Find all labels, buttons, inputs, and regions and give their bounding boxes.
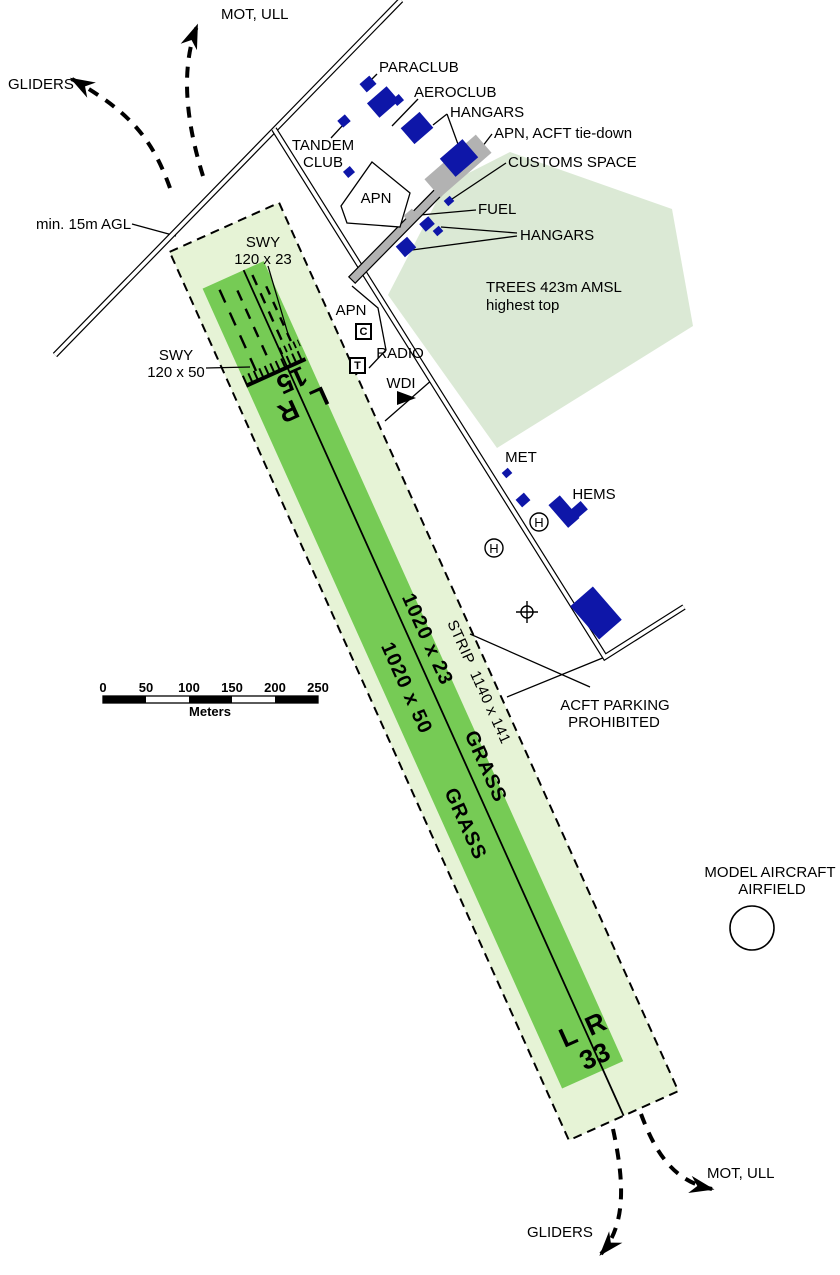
swy-sw-label-1: SWY bbox=[159, 347, 193, 364]
parking-fence-line bbox=[507, 657, 605, 697]
gliders-top-label: GLIDERS bbox=[8, 76, 74, 93]
hangars-lower-label: HANGARS bbox=[520, 227, 594, 244]
scale-tick-100: 100 bbox=[178, 680, 200, 695]
fuel-label: FUEL bbox=[478, 201, 516, 218]
helipad-letter: H bbox=[489, 541, 498, 556]
scale-tick-150: 150 bbox=[221, 680, 243, 695]
hangars-top-leader-1 bbox=[433, 114, 447, 125]
scale-tick-50: 50 bbox=[139, 680, 153, 695]
mot-top-label: MOT, ULL bbox=[221, 6, 289, 23]
tandem-label-1: TANDEM bbox=[292, 137, 354, 154]
building-large bbox=[570, 587, 622, 640]
acft-parking-label-2: PROHIBITED bbox=[568, 714, 660, 731]
model-airfield-icon bbox=[730, 906, 774, 950]
mot-route-arrow-bottom-icon bbox=[641, 1114, 712, 1189]
gliders-route-arrow-bottom-icon bbox=[601, 1129, 621, 1254]
apn-tiedown-label: APN, ACFT tie-down bbox=[494, 125, 632, 142]
customs-label: CUSTOMS SPACE bbox=[508, 154, 637, 171]
building-tandem bbox=[337, 114, 350, 127]
tandem-label-2: CLUB bbox=[303, 154, 343, 171]
radio-label: RADIO bbox=[376, 345, 424, 362]
scale-tick-200: 200 bbox=[264, 680, 286, 695]
scale-bar: 0 50 100 150 200 250 Meters bbox=[99, 680, 328, 719]
gliders-bottom-label: GLIDERS bbox=[527, 1224, 593, 1241]
scale-tick-0: 0 bbox=[99, 680, 106, 695]
paraclub-label: PARACLUB bbox=[379, 59, 459, 76]
model-airfield-label-2: AIRFIELD bbox=[738, 881, 806, 898]
symbol-c-letter: C bbox=[360, 326, 368, 338]
gliders-route-arrow-top-icon bbox=[72, 79, 170, 188]
building-paraclub bbox=[359, 76, 376, 93]
mot-bottom-label: MOT, ULL bbox=[707, 1165, 775, 1182]
trees-label-1: TREES 423m AMSL bbox=[486, 279, 622, 296]
building-met-a bbox=[502, 468, 513, 479]
wdi-label: WDI bbox=[386, 375, 415, 392]
acft-parking-label-1: ACFT PARKING bbox=[560, 697, 669, 714]
hangars-top-label: HANGARS bbox=[450, 104, 524, 121]
scale-unit: Meters bbox=[189, 704, 231, 719]
trees-label-2: highest top bbox=[486, 297, 559, 314]
swy-sw-label-2: 120 x 50 bbox=[147, 364, 205, 381]
mot-route-arrow-top-icon bbox=[187, 26, 203, 176]
apn-mid-label: APN bbox=[336, 302, 367, 319]
met-label: MET bbox=[505, 449, 537, 466]
reference-point-icon bbox=[516, 601, 538, 623]
aeroclub-label: AEROCLUB bbox=[414, 84, 497, 101]
building-hangar-1 bbox=[401, 112, 434, 144]
hems-label: HEMS bbox=[572, 486, 615, 503]
swy-ne-label-1: SWY bbox=[246, 234, 280, 251]
aerodrome-chart: L R 15 1020 x 23 GRASS 1020 x 50 GRASS S… bbox=[0, 0, 840, 1270]
scale-tick-250: 250 bbox=[307, 680, 329, 695]
building-met-b bbox=[516, 493, 531, 508]
swy-ne-label-2: 120 x 23 bbox=[234, 251, 292, 268]
model-airfield-label-1: MODEL AIRCRAFT bbox=[704, 864, 835, 881]
helipad-letter: H bbox=[534, 515, 543, 530]
building-small bbox=[343, 166, 355, 178]
min-agl-label: min. 15m AGL bbox=[36, 216, 131, 233]
aerodrome-chart-svg: L R 15 1020 x 23 GRASS 1020 x 50 GRASS S… bbox=[0, 0, 840, 1270]
apn-north-label: APN bbox=[361, 190, 392, 207]
symbol-t-letter: T bbox=[354, 360, 361, 372]
